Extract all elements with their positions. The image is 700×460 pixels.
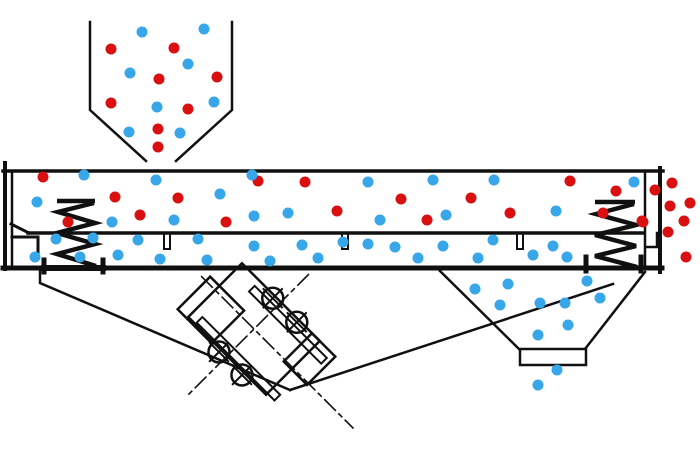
particle-dot: [153, 142, 164, 153]
particle-dot: [565, 176, 576, 187]
eccentric-shaft-lower: [197, 317, 280, 400]
particle-dot: [533, 330, 544, 341]
particle-dot: [422, 215, 433, 226]
discharge-spout: [520, 349, 586, 365]
diagram-canvas: [0, 0, 700, 460]
fines-collection-funnel: [440, 271, 645, 365]
mesh-left-slant: [11, 224, 29, 233]
right-support-spring: [586, 202, 641, 271]
particle-dot: [663, 227, 674, 238]
particle-dot: [679, 216, 690, 227]
particle-dot: [124, 127, 135, 138]
particle-dot: [152, 102, 163, 113]
particle-dot: [552, 365, 563, 376]
particle-dot: [681, 252, 692, 263]
hopper-feed-blue: [124, 24, 220, 139]
funnel-right-edge: [585, 272, 645, 349]
deck-top-red: [38, 172, 648, 228]
particle-dot: [154, 74, 165, 85]
particle-dot: [135, 210, 146, 221]
particle-dot: [283, 208, 294, 219]
feed-hopper: [90, 22, 232, 161]
particle-dot: [595, 293, 606, 304]
under-deck-blue: [30, 233, 573, 267]
particle-dot: [110, 192, 121, 203]
particle-dot: [75, 252, 86, 263]
particle-dot: [535, 298, 546, 309]
particle-dot: [106, 44, 117, 55]
particle-dot: [151, 175, 162, 186]
particle-dot: [212, 72, 223, 83]
particle-dot: [199, 24, 210, 35]
particle-dot: [582, 276, 593, 287]
particle-dot: [63, 217, 74, 228]
particle-dot: [488, 235, 499, 246]
particle-dot: [113, 250, 124, 261]
particle-dot: [466, 193, 477, 204]
particle-dot: [183, 59, 194, 70]
particle-dot: [173, 193, 184, 204]
particle-dot: [209, 97, 220, 108]
particle-dot: [133, 235, 144, 246]
particle-dot: [175, 128, 186, 139]
mesh-right-bracket: [646, 233, 657, 247]
particle-dot: [51, 234, 62, 245]
particle-dot: [548, 241, 559, 252]
deck-top-blue: [32, 170, 640, 228]
particle-dot: [375, 215, 386, 226]
particle-dot: [363, 239, 374, 250]
particle-dot: [137, 27, 148, 38]
particle-dot: [638, 217, 649, 228]
particle-dot: [441, 210, 452, 221]
particle-dot: [155, 254, 166, 265]
particle-dot: [297, 240, 308, 251]
particle-dot: [505, 208, 516, 219]
particle-dot: [183, 104, 194, 115]
particle-dot: [650, 185, 661, 196]
particle-dot: [88, 233, 99, 244]
vibrating-screen-diagram: [0, 0, 700, 460]
particle-dot: [562, 252, 573, 263]
particle-dot: [106, 98, 117, 109]
particle-dot: [313, 253, 324, 264]
particle-dot: [107, 217, 118, 228]
eccentric-shaft-upper: [249, 286, 327, 364]
particle-dot: [533, 380, 544, 391]
particle-dot: [629, 177, 640, 188]
particle-dot: [300, 177, 311, 188]
particle-dot: [265, 256, 276, 267]
mesh-support-hook: [164, 233, 170, 249]
particle-dot: [685, 198, 696, 209]
particle-dot: [79, 170, 90, 181]
particle-dot: [495, 300, 506, 311]
particle-dot: [169, 215, 180, 226]
particle-dot: [30, 252, 41, 263]
hopper-right-wall: [176, 22, 232, 161]
mesh-support-hook: [517, 233, 523, 249]
particle-dot: [390, 242, 401, 253]
particle-dot: [153, 124, 164, 135]
particle-dot: [193, 234, 204, 245]
particle-dot: [332, 206, 343, 217]
particle-dot: [665, 201, 676, 212]
particle-dot: [560, 298, 571, 309]
particle-dot: [611, 186, 622, 197]
particle-dot: [503, 279, 514, 290]
particle-dot: [528, 250, 539, 261]
particle-dot: [221, 217, 232, 228]
particle-dot: [125, 68, 136, 79]
particle-dot: [215, 189, 226, 200]
hopper-left-wall: [90, 22, 146, 161]
particle-dot: [38, 172, 49, 183]
particle-dot: [413, 253, 424, 264]
particle-dot: [249, 241, 260, 252]
particle-dot: [428, 175, 439, 186]
particle-dot: [169, 43, 180, 54]
v-support-frame: [40, 270, 613, 390]
particle-dot: [338, 237, 349, 248]
particle-dot: [470, 284, 481, 295]
particle-dot: [363, 177, 374, 188]
screen-mesh-deck: [11, 224, 657, 258]
particle-dot: [667, 178, 678, 189]
particle-dot: [563, 320, 574, 331]
particle-dot: [598, 208, 609, 219]
particle-dot: [473, 253, 484, 264]
particle-dot: [551, 206, 562, 217]
particle-dot: [396, 194, 407, 205]
particle-dot: [438, 241, 449, 252]
particle-dot: [32, 197, 43, 208]
particle-dot: [489, 175, 500, 186]
particle-dot: [202, 255, 213, 266]
particle-dot: [247, 170, 258, 181]
particle-dot: [249, 211, 260, 222]
